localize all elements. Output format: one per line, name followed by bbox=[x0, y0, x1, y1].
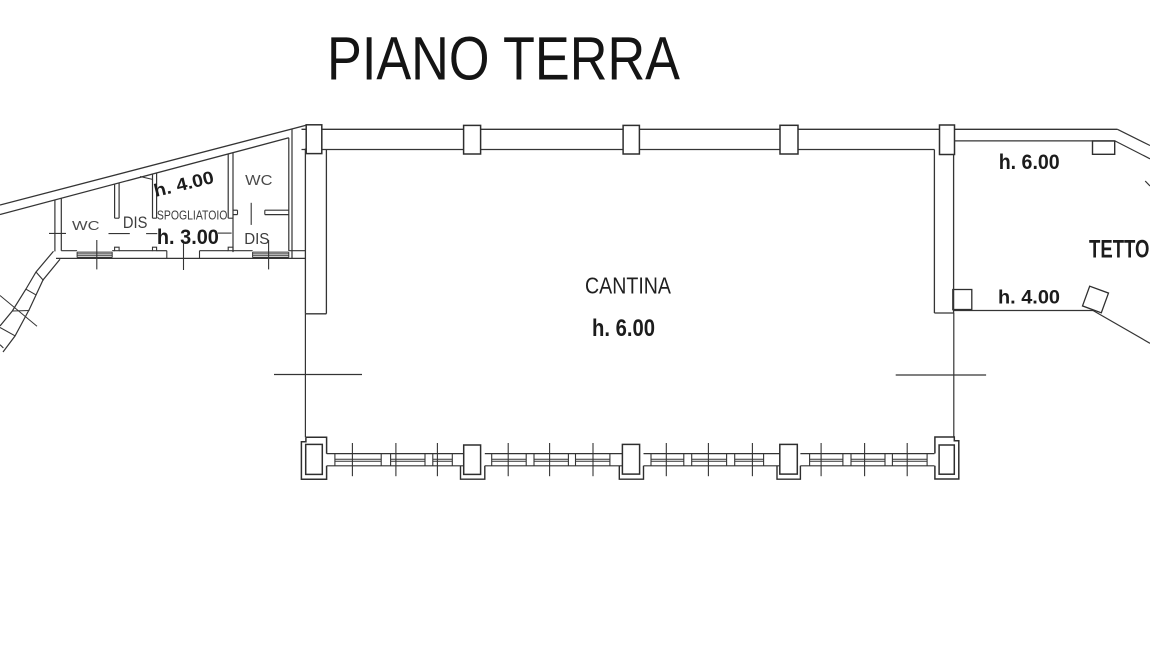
svg-text:WC: WC bbox=[72, 218, 100, 233]
svg-text:DIS: DIS bbox=[244, 231, 269, 248]
svg-text:h. 4.00: h. 4.00 bbox=[998, 286, 1060, 308]
svg-text:h. 6.00: h. 6.00 bbox=[999, 151, 1060, 174]
svg-text:PIANO TERRA: PIANO TERRA bbox=[327, 25, 680, 93]
svg-text:WC: WC bbox=[245, 172, 272, 189]
svg-text:CANTINA: CANTINA bbox=[585, 273, 671, 299]
svg-text:TETTOIA: TETTOIA bbox=[1089, 236, 1150, 264]
svg-text:DIS: DIS bbox=[123, 214, 147, 232]
svg-text:SPOGLIATOIO: SPOGLIATOIO bbox=[157, 209, 228, 223]
svg-text:h. 3.00: h. 3.00 bbox=[157, 226, 219, 249]
svg-text:h. 6.00: h. 6.00 bbox=[592, 315, 655, 342]
